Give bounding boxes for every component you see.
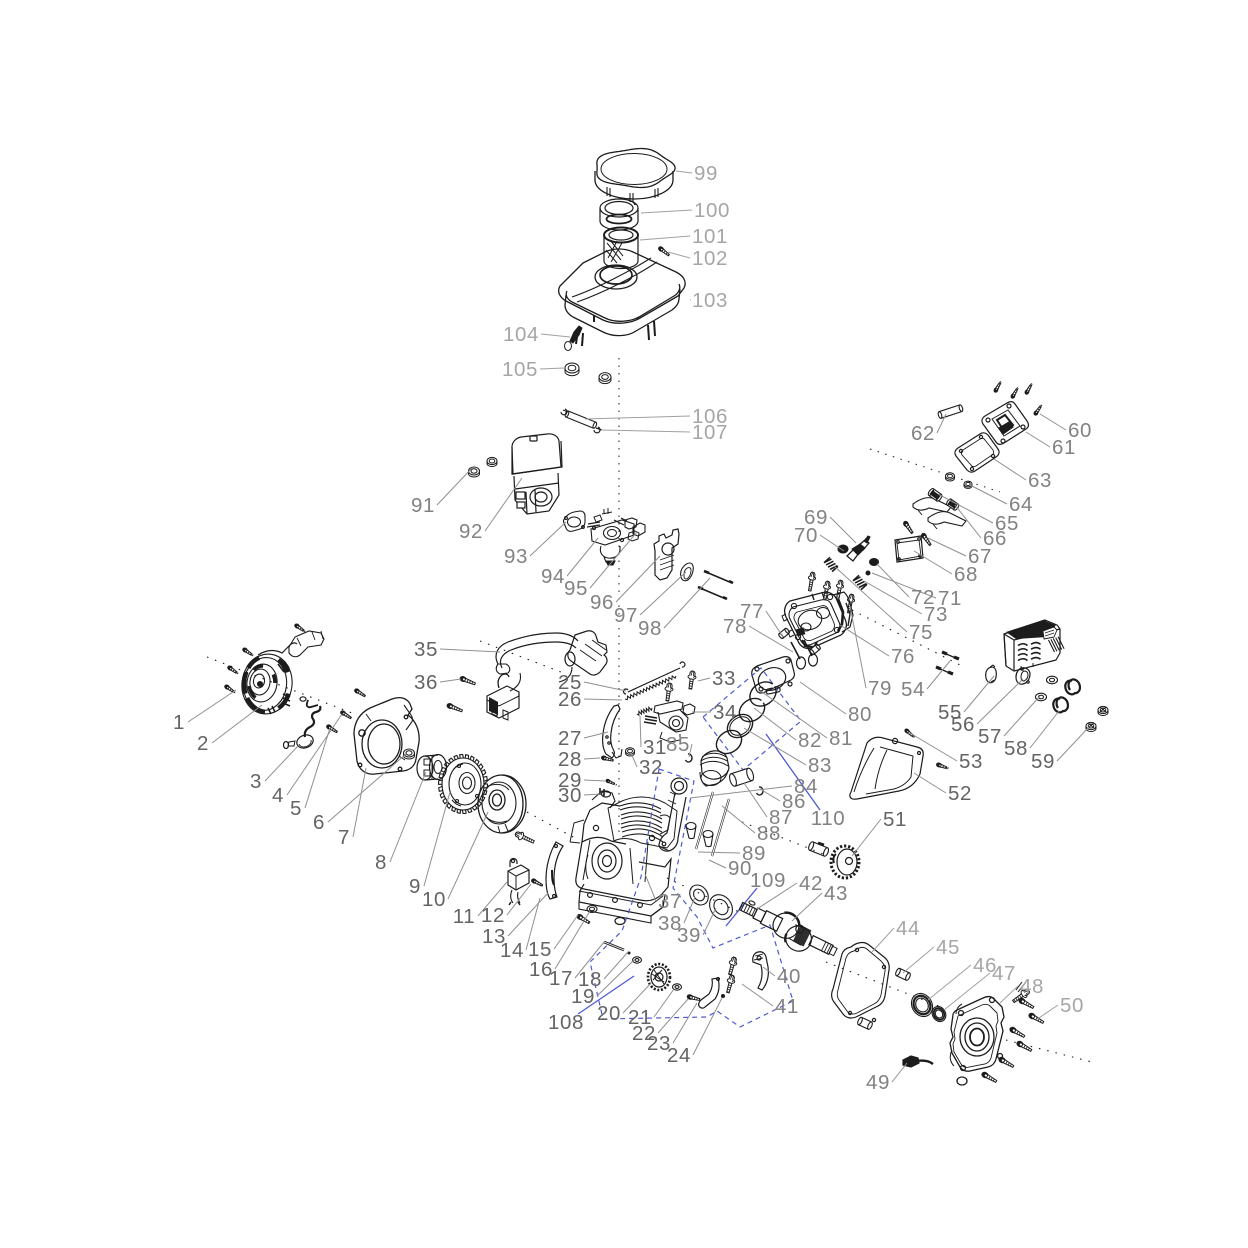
svg-text:75: 75 xyxy=(909,621,933,644)
svg-text:49: 49 xyxy=(866,1071,890,1094)
svg-text:33: 33 xyxy=(712,667,736,690)
svg-text:17: 17 xyxy=(549,967,573,990)
svg-text:45: 45 xyxy=(936,936,960,959)
svg-text:24: 24 xyxy=(667,1044,691,1067)
svg-text:78: 78 xyxy=(723,615,747,638)
svg-text:14: 14 xyxy=(500,939,524,962)
svg-text:10: 10 xyxy=(422,888,446,911)
svg-text:99: 99 xyxy=(694,162,718,185)
svg-text:44: 44 xyxy=(896,917,920,940)
svg-text:8: 8 xyxy=(375,851,387,874)
svg-text:100: 100 xyxy=(694,199,730,222)
svg-text:34: 34 xyxy=(713,701,737,724)
svg-text:7: 7 xyxy=(338,826,350,849)
svg-text:3: 3 xyxy=(250,770,262,793)
svg-text:35: 35 xyxy=(414,638,438,661)
svg-text:103: 103 xyxy=(692,289,728,312)
svg-text:104: 104 xyxy=(503,323,539,346)
svg-text:110: 110 xyxy=(811,807,845,830)
svg-text:80: 80 xyxy=(848,703,872,726)
svg-text:68: 68 xyxy=(954,563,978,586)
svg-text:91: 91 xyxy=(411,494,435,517)
svg-text:5: 5 xyxy=(290,797,302,820)
svg-text:57: 57 xyxy=(978,725,1002,748)
svg-text:41: 41 xyxy=(775,995,799,1018)
svg-text:40: 40 xyxy=(777,965,801,988)
svg-text:54: 54 xyxy=(901,678,925,701)
svg-text:76: 76 xyxy=(891,645,915,668)
svg-text:92: 92 xyxy=(459,520,483,543)
svg-text:81: 81 xyxy=(829,727,853,750)
svg-text:83: 83 xyxy=(808,754,832,777)
svg-text:94: 94 xyxy=(541,565,565,588)
svg-text:36: 36 xyxy=(414,671,438,694)
svg-text:19: 19 xyxy=(571,985,595,1008)
svg-text:50: 50 xyxy=(1060,994,1084,1017)
svg-text:30: 30 xyxy=(558,784,582,807)
svg-text:98: 98 xyxy=(638,617,662,640)
svg-text:28: 28 xyxy=(558,748,582,771)
svg-text:6: 6 xyxy=(313,811,325,834)
svg-text:102: 102 xyxy=(692,247,728,270)
svg-text:90: 90 xyxy=(728,857,752,880)
svg-text:4: 4 xyxy=(272,784,284,807)
svg-text:51: 51 xyxy=(883,808,907,831)
svg-text:85: 85 xyxy=(666,733,690,756)
svg-text:39: 39 xyxy=(677,924,701,947)
svg-text:1: 1 xyxy=(173,711,185,734)
svg-text:2: 2 xyxy=(197,732,209,755)
svg-text:42: 42 xyxy=(799,872,823,895)
svg-text:47: 47 xyxy=(992,962,1016,985)
svg-text:82: 82 xyxy=(798,729,822,752)
svg-text:52: 52 xyxy=(948,782,972,805)
svg-text:43: 43 xyxy=(824,882,848,905)
svg-text:26: 26 xyxy=(558,688,582,711)
svg-text:11: 11 xyxy=(453,905,475,928)
svg-text:12: 12 xyxy=(481,904,505,927)
svg-text:108: 108 xyxy=(548,1011,584,1034)
svg-text:59: 59 xyxy=(1031,750,1055,773)
svg-text:70: 70 xyxy=(794,524,818,547)
svg-text:101: 101 xyxy=(692,225,728,248)
svg-text:27: 27 xyxy=(558,727,582,750)
svg-text:109: 109 xyxy=(750,869,786,892)
svg-text:62: 62 xyxy=(911,422,935,445)
svg-text:95: 95 xyxy=(564,577,588,600)
svg-text:61: 61 xyxy=(1052,436,1076,459)
svg-text:53: 53 xyxy=(959,750,983,773)
svg-text:93: 93 xyxy=(504,545,528,568)
svg-text:97: 97 xyxy=(614,604,638,627)
svg-text:20: 20 xyxy=(597,1002,621,1025)
svg-text:96: 96 xyxy=(590,591,614,614)
svg-text:63: 63 xyxy=(1028,469,1052,492)
svg-text:58: 58 xyxy=(1004,737,1028,760)
svg-text:37: 37 xyxy=(658,890,682,913)
svg-text:32: 32 xyxy=(639,756,663,779)
svg-text:56: 56 xyxy=(951,713,975,736)
svg-text:48: 48 xyxy=(1020,975,1044,998)
svg-text:107: 107 xyxy=(692,421,728,444)
svg-text:79: 79 xyxy=(868,677,892,700)
svg-text:9: 9 xyxy=(409,875,421,898)
svg-text:105: 105 xyxy=(502,358,538,381)
